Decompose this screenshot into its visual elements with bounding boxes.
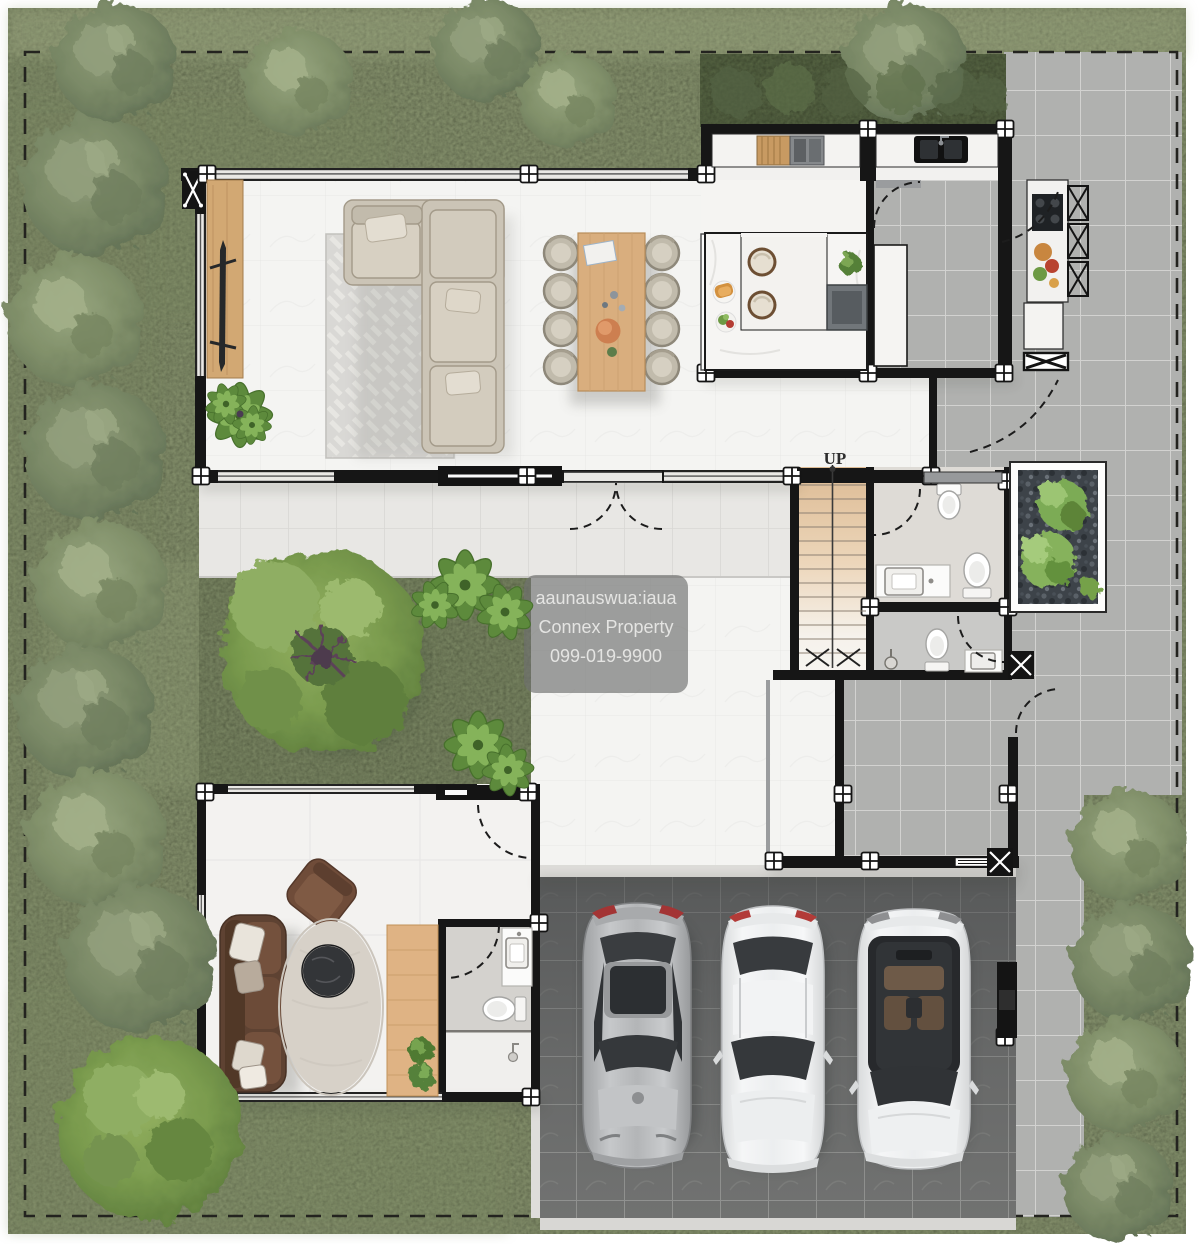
svg-text:099-019-9900: 099-019-9900 bbox=[550, 646, 662, 666]
svg-text:aaunauswua:iaua: aaunauswua:iaua bbox=[535, 588, 677, 608]
svg-text:Connex Property: Connex Property bbox=[538, 617, 673, 637]
svg-text:UP: UP bbox=[824, 449, 847, 468]
